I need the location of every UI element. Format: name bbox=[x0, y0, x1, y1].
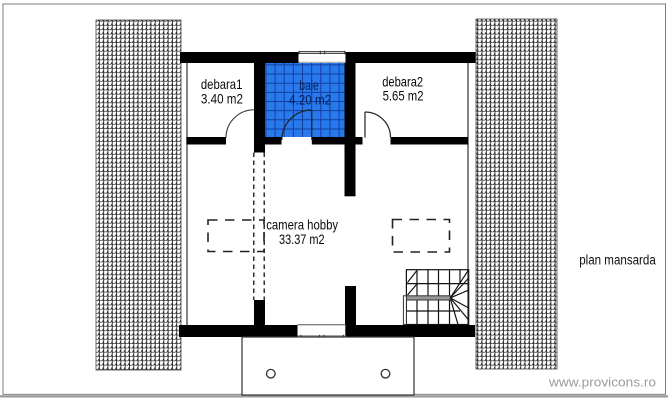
svg-text:5.65 m2: 5.65 m2 bbox=[383, 89, 424, 104]
svg-text:www.provicons.ro: www.provicons.ro bbox=[548, 374, 656, 389]
svg-text:plan mansarda: plan mansarda bbox=[579, 253, 656, 269]
svg-text:baie: baie bbox=[299, 78, 319, 93]
svg-text:4.20 m2: 4.20 m2 bbox=[289, 93, 331, 108]
svg-text:33.37 m2: 33.37 m2 bbox=[279, 232, 325, 247]
svg-text:debara1: debara1 bbox=[201, 77, 243, 92]
svg-text:3.40 m2: 3.40 m2 bbox=[201, 92, 243, 107]
svg-text:camera hobby: camera hobby bbox=[266, 218, 338, 233]
svg-text:debara2: debara2 bbox=[382, 75, 423, 90]
